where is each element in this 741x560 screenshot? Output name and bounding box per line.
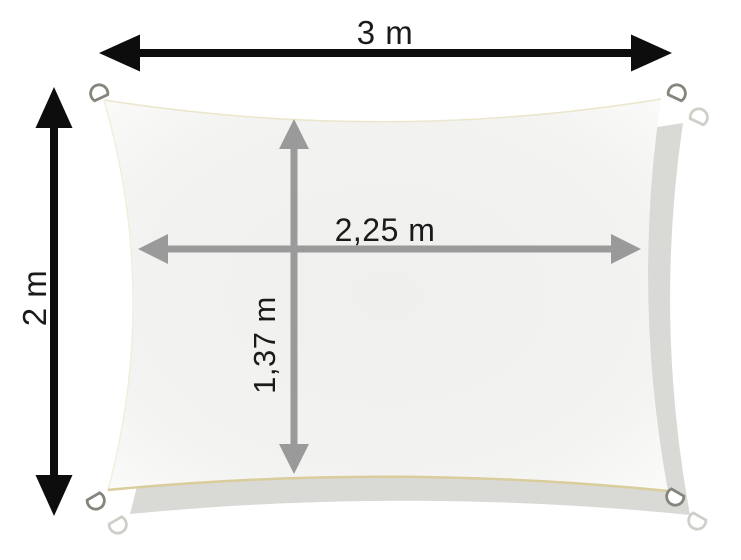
corner-d-ring-top-left bbox=[88, 82, 109, 101]
outer-height-label: 2 m bbox=[16, 270, 53, 327]
dimension-diagram-stage: 3 m 2 m 2,25 m 1,37 m bbox=[0, 0, 741, 560]
outer-width-label: 3 m bbox=[357, 14, 414, 51]
arrowhead-down bbox=[36, 475, 73, 516]
shadow-corner-ring-top-right bbox=[689, 106, 710, 125]
inner-width-label: 2,25 m bbox=[335, 212, 436, 248]
corner-d-ring-top-right bbox=[667, 82, 688, 101]
arrowhead-left bbox=[99, 35, 140, 72]
arrowhead-right bbox=[631, 35, 672, 72]
arrowhead-up bbox=[36, 87, 73, 128]
shadow-corner-ring-bottom-right bbox=[686, 512, 708, 532]
inner-height-label: 1,37 m bbox=[247, 296, 282, 394]
shade-sail-dimension-diagram: 3 m 2 m 2,25 m 1,37 m bbox=[0, 0, 741, 560]
shade-sail bbox=[86, 82, 688, 512]
corner-d-ring-bottom-left bbox=[86, 492, 108, 512]
shadow-corner-ring-bottom-left bbox=[108, 516, 130, 536]
sail-fabric bbox=[104, 99, 668, 491]
